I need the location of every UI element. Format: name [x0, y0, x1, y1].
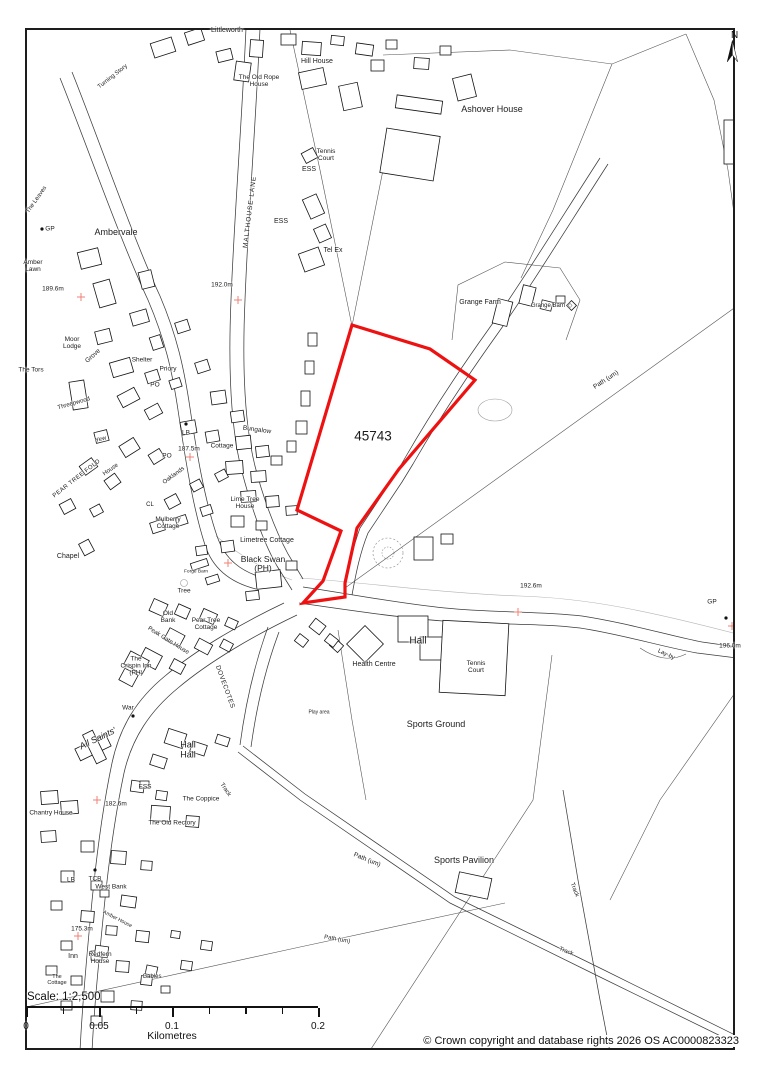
- scale-bar: 00.050.10.2: [26, 1006, 318, 1019]
- building-footprint: [251, 470, 267, 482]
- building-footprint: [441, 534, 453, 544]
- scale-tick: [245, 1008, 247, 1014]
- building-footprint: [95, 328, 113, 344]
- building-footprint: [94, 945, 108, 958]
- building-footprint: [302, 194, 324, 219]
- building-footprint: [266, 496, 280, 508]
- building-footprint: [61, 800, 79, 814]
- building-footprint: [314, 224, 332, 243]
- building-footprint: [220, 540, 234, 553]
- grid-cross: [186, 453, 194, 461]
- scale-tick-label: 0.2: [311, 1021, 325, 1032]
- building-footprint: [190, 559, 208, 571]
- building-footprint: [101, 991, 114, 1002]
- building-footprint: [71, 976, 82, 985]
- scale-tick-label: 0.05: [89, 1021, 108, 1032]
- scale-tick: [318, 1008, 320, 1017]
- grid-cross: [74, 932, 82, 940]
- building-footprint: [216, 48, 233, 62]
- building-footprint: [145, 369, 161, 383]
- building-footprint: [140, 781, 149, 788]
- scale-tick-label: 0: [23, 1021, 29, 1032]
- building-footprint: [149, 599, 168, 617]
- building-footprint: [195, 545, 207, 555]
- building-footprint: [91, 881, 102, 890]
- building-footprint: [150, 519, 166, 533]
- building-footprint: [111, 850, 127, 864]
- building-footprint: [205, 430, 220, 443]
- building-footprint: [308, 333, 317, 346]
- building-footprint: [141, 975, 153, 985]
- building-footprint: [298, 247, 324, 272]
- grid-cross: [224, 559, 232, 567]
- building-footprint: [301, 391, 310, 406]
- building-footprint: [106, 926, 118, 936]
- building-footprint: [271, 456, 282, 465]
- point-symbol: [184, 422, 187, 425]
- building-footprint: [246, 590, 260, 600]
- building-footprint: [169, 659, 186, 675]
- building-footprint: [100, 890, 109, 897]
- building-footprint: [148, 448, 165, 464]
- building-footprint: [41, 830, 57, 842]
- building-footprint: [347, 626, 384, 663]
- building-footprint: [51, 901, 62, 910]
- building-footprint: [230, 410, 244, 423]
- building-footprint: [119, 668, 138, 687]
- building-footprint: [161, 986, 170, 993]
- building-footprint: [119, 437, 140, 457]
- building-footprint: [93, 279, 116, 308]
- scale-tick: [209, 1008, 211, 1014]
- building-footprint: [200, 940, 212, 950]
- building-footprint: [184, 28, 204, 46]
- map-linework: [0, 0, 764, 1080]
- building-footprint: [164, 628, 185, 647]
- building-footprint: [414, 537, 433, 560]
- building-footprint: [567, 301, 577, 311]
- building-footprint: [61, 941, 72, 950]
- building-footprint: [180, 960, 192, 970]
- building-footprint: [81, 911, 95, 923]
- scale-tick: [63, 1008, 65, 1014]
- building-footprint: [339, 82, 363, 110]
- building-footprint: [226, 460, 244, 474]
- building-footprint: [395, 95, 442, 114]
- scale-tick: [26, 1008, 28, 1017]
- building-footprint: [287, 441, 296, 452]
- building-footprint: [175, 319, 191, 333]
- building-footprint: [69, 380, 88, 410]
- building-footprint: [519, 285, 536, 307]
- scale-tick: [136, 1008, 138, 1014]
- building-footprint: [440, 46, 451, 55]
- building-footprint: [145, 965, 158, 976]
- building-footprint: [77, 248, 101, 270]
- building-footprint: [386, 40, 397, 49]
- building-footprint: [286, 561, 297, 570]
- building-footprint: [205, 574, 220, 585]
- building-footprint: [331, 35, 345, 45]
- building-footprint: [61, 871, 74, 882]
- building-footprint: [150, 37, 176, 58]
- building-footprint: [492, 299, 513, 327]
- north-label: N: [731, 30, 738, 41]
- building-footprint: [453, 74, 477, 101]
- building-footprint: [59, 499, 76, 515]
- building-footprint: [231, 516, 244, 527]
- copyright-text: © Crown copyright and database rights 20…: [421, 1035, 741, 1047]
- building-footprint: [301, 148, 318, 164]
- building-footprint: [215, 734, 230, 747]
- building-footprint: [81, 841, 94, 852]
- point-symbol: [724, 616, 727, 619]
- scale-text: Scale: 1:2,500: [27, 991, 101, 1003]
- point-symbol: [131, 714, 134, 717]
- building-footprint: [150, 805, 170, 821]
- building-footprint: [135, 930, 149, 942]
- building-footprint: [380, 128, 440, 181]
- building-footprint: [130, 309, 150, 326]
- point-symbol: [93, 868, 96, 871]
- scale-tick: [172, 1008, 174, 1017]
- building-footprint: [455, 872, 492, 899]
- building-footprint: [305, 361, 314, 374]
- building-footprint: [117, 387, 140, 407]
- building-footprint: [199, 608, 217, 624]
- building-footprint: [439, 620, 509, 695]
- grid-cross: [514, 608, 522, 616]
- scale-tick: [282, 1008, 284, 1014]
- building-footprint: [724, 120, 736, 164]
- building-footprint: [79, 458, 98, 476]
- building-footprint: [94, 430, 109, 444]
- building-footprint: [371, 60, 384, 71]
- building-footprint: [164, 494, 181, 510]
- building-footprint: [414, 57, 430, 69]
- building-footprint: [556, 296, 565, 303]
- building-footprint: [180, 420, 197, 435]
- building-footprint: [255, 570, 282, 590]
- scale-tick: [99, 1008, 101, 1017]
- grid-cross: [93, 796, 101, 804]
- building-footprint: [141, 861, 153, 871]
- building-footprint: [120, 895, 136, 908]
- building-footprint: [195, 359, 211, 373]
- grid-cross: [234, 296, 242, 304]
- building-footprint: [200, 505, 213, 517]
- point-symbol: [40, 227, 43, 230]
- scale-unit: Kilometres: [132, 1030, 212, 1042]
- building-footprint: [281, 34, 296, 45]
- building-footprint: [150, 754, 168, 769]
- building-footprint: [302, 41, 322, 55]
- building-footprint: [540, 300, 553, 311]
- building-footprint: [169, 378, 182, 390]
- building-footprint: [355, 43, 373, 56]
- building-footprint: [155, 790, 167, 800]
- building-footprint: [299, 68, 327, 90]
- building-footprint: [296, 421, 307, 434]
- building-footprint: [79, 539, 95, 556]
- building-footprint: [241, 490, 257, 502]
- os-map-page: LittleworthHill HouseThe Old Rope HouseA…: [0, 0, 764, 1080]
- grid-cross: [728, 622, 736, 630]
- building-footprint: [109, 357, 133, 377]
- north-arrow: N: [715, 30, 755, 86]
- building-footprint: [249, 40, 263, 58]
- grid-cross: [77, 293, 85, 301]
- building-footprint: [164, 728, 187, 748]
- building-footprint: [116, 961, 130, 973]
- building-footprint: [294, 634, 308, 648]
- building-footprint: [174, 604, 190, 619]
- building-footprint: [46, 966, 57, 975]
- building-footprint: [235, 435, 251, 449]
- building-footprint: [41, 790, 59, 804]
- building-footprint: [138, 270, 155, 290]
- building-footprint: [190, 741, 208, 756]
- building-footprint: [144, 403, 162, 420]
- building-footprint: [90, 504, 104, 517]
- site-boundary: [297, 325, 475, 603]
- building-footprint: [171, 930, 181, 938]
- building-footprint: [104, 473, 121, 490]
- building-footprint: [309, 618, 326, 635]
- building-footprint: [255, 445, 269, 457]
- building-footprint: [256, 521, 267, 530]
- building-footprint: [210, 390, 227, 405]
- building-footprint: [186, 816, 200, 828]
- building-footprint: [175, 515, 188, 527]
- building-footprint: [234, 61, 251, 82]
- building-footprint: [194, 638, 212, 655]
